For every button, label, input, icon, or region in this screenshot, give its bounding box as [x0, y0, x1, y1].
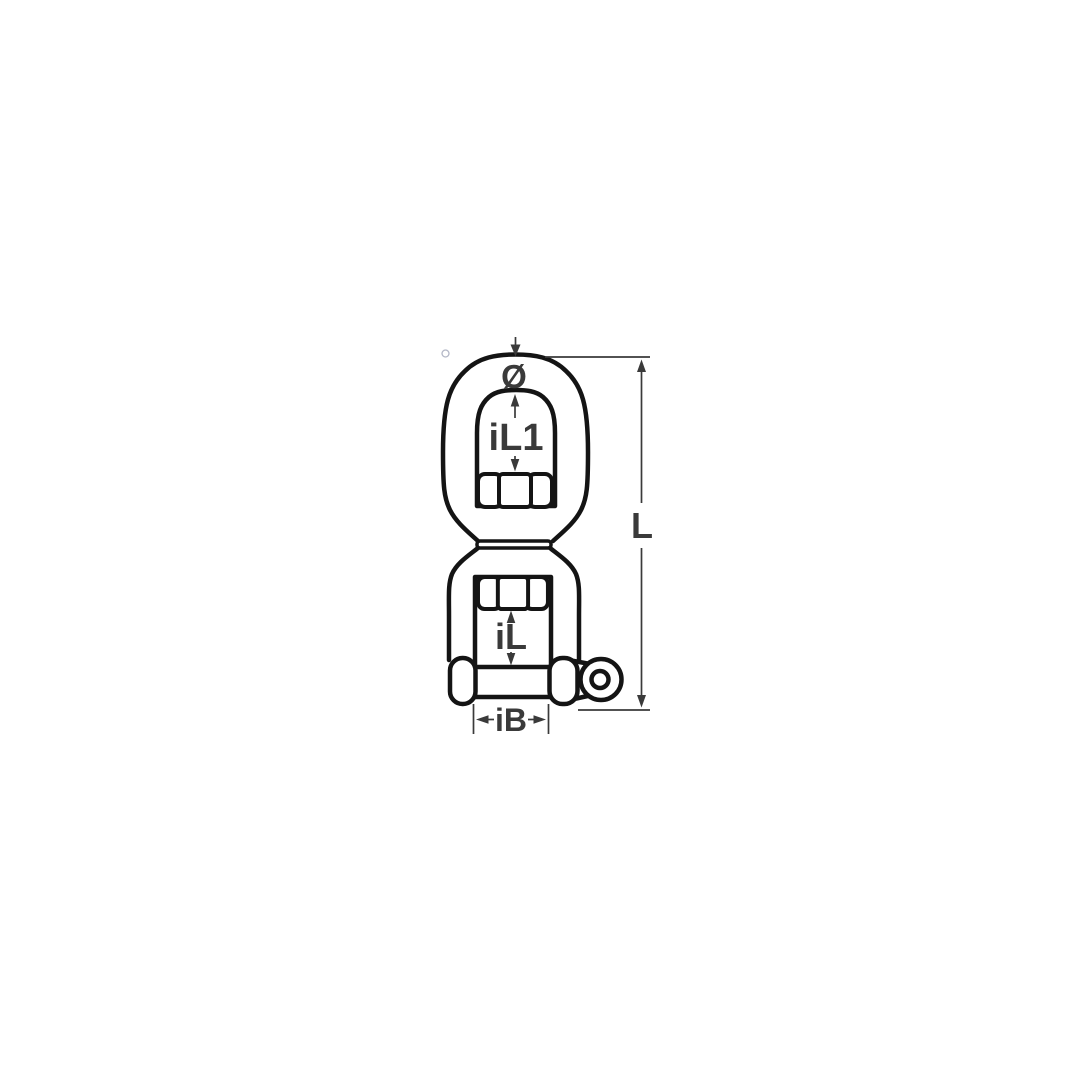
drawing-canvas: Ø iL1 L: [0, 0, 1080, 1080]
fork-left-boss: [450, 658, 476, 704]
label-pin-diameter: Ø: [501, 358, 527, 395]
label-overall-length: L: [631, 505, 653, 546]
ib-right-arrowhead-icon: [534, 715, 547, 724]
ib-left-arrowhead-icon: [476, 715, 489, 724]
stray-dot: [442, 350, 449, 357]
hex-nut-upper: [478, 474, 552, 507]
swivel-collar: [477, 541, 551, 548]
il1-down-arrowhead-icon: [511, 459, 520, 472]
label-eye-inner-length: iL1: [489, 417, 544, 459]
l-down-arrowhead-icon: [637, 695, 646, 708]
part-outline: [443, 355, 622, 705]
fork-right-shoulder-leg: [550, 548, 579, 660]
label-fork-inner-length: iL: [495, 616, 527, 657]
swivel-technical-drawing: Ø iL1 L: [0, 0, 1080, 1080]
pin-eye-hole: [592, 671, 609, 688]
fork-right-boss: [550, 658, 578, 704]
hex-nut-lower: [478, 577, 548, 609]
label-fork-inner-width: iB: [495, 702, 527, 738]
